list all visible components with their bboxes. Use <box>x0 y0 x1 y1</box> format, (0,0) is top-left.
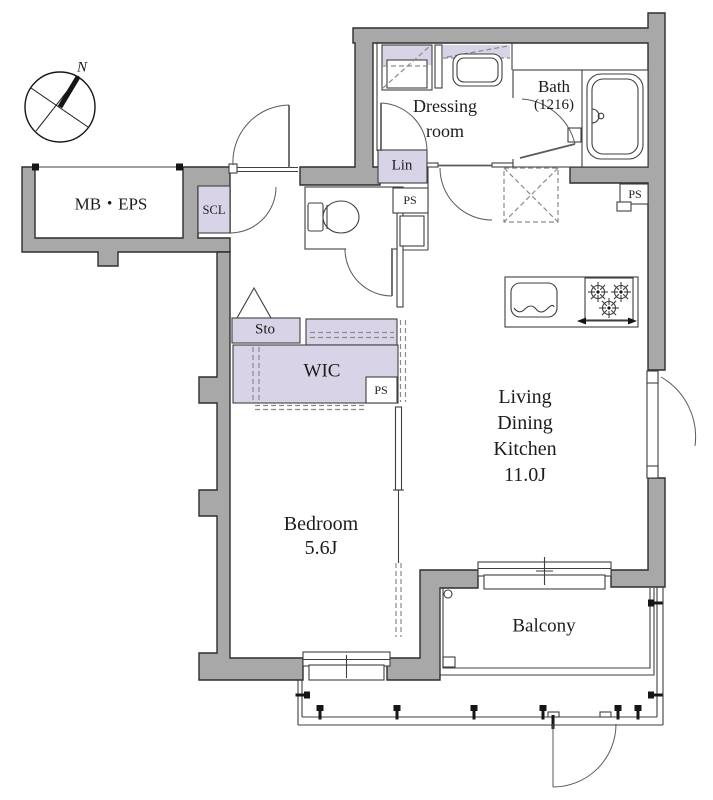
room-label-sto: Sto <box>255 323 275 338</box>
room-label-ps-2: PS <box>628 188 641 200</box>
floor-plan-drawing <box>0 0 713 800</box>
room-label-ldk: Living Dining Kitchen 11.0J <box>493 384 556 488</box>
room-label-lin: Lin <box>392 159 413 174</box>
toilet-door-icon <box>345 249 392 296</box>
step-triangle-icon <box>237 288 271 318</box>
entrance <box>229 105 298 173</box>
kitchen <box>504 168 638 327</box>
room-label-wic: WIC <box>304 362 341 381</box>
room-label-bath: Bath (1216) <box>534 77 574 115</box>
room-label-balcony: Balcony <box>512 617 575 636</box>
bathtub-icon <box>587 74 643 159</box>
floor-plan: N MB・EPS SCL Dressing room Lin PS Bath (… <box>0 0 713 800</box>
room-label-ps-1: PS <box>403 194 416 206</box>
dressing-ldk-door-icon <box>438 166 492 221</box>
toilet-icon <box>308 201 359 233</box>
room-label-scl: SCL <box>203 204 226 217</box>
kitchen-sink-icon <box>511 283 557 317</box>
entrance-door-icon <box>233 105 289 168</box>
mb-eps-box <box>32 164 183 171</box>
room-label-ps-3: PS <box>374 384 387 396</box>
ldk-side-door-icon <box>647 371 696 478</box>
washbasin-icon <box>443 45 510 86</box>
refrigerator-space-icon <box>504 168 558 222</box>
bedroom-window <box>303 652 390 680</box>
washer-pan-icon <box>382 45 432 90</box>
room-label-dressing: Dressing room <box>413 94 477 144</box>
gate-door-icon <box>553 724 616 787</box>
room-label-bedroom: Bedroom 5.6J <box>284 512 358 560</box>
hall-closet-door-icon <box>230 187 276 233</box>
ldk-window <box>478 557 611 589</box>
bedroom-partition <box>393 407 404 637</box>
compass-icon <box>25 72 95 142</box>
compass-north-label: N <box>77 61 87 76</box>
bathroom <box>509 70 648 211</box>
room-label-mb-eps: MB・EPS <box>75 196 148 213</box>
garden-fence <box>296 587 664 787</box>
